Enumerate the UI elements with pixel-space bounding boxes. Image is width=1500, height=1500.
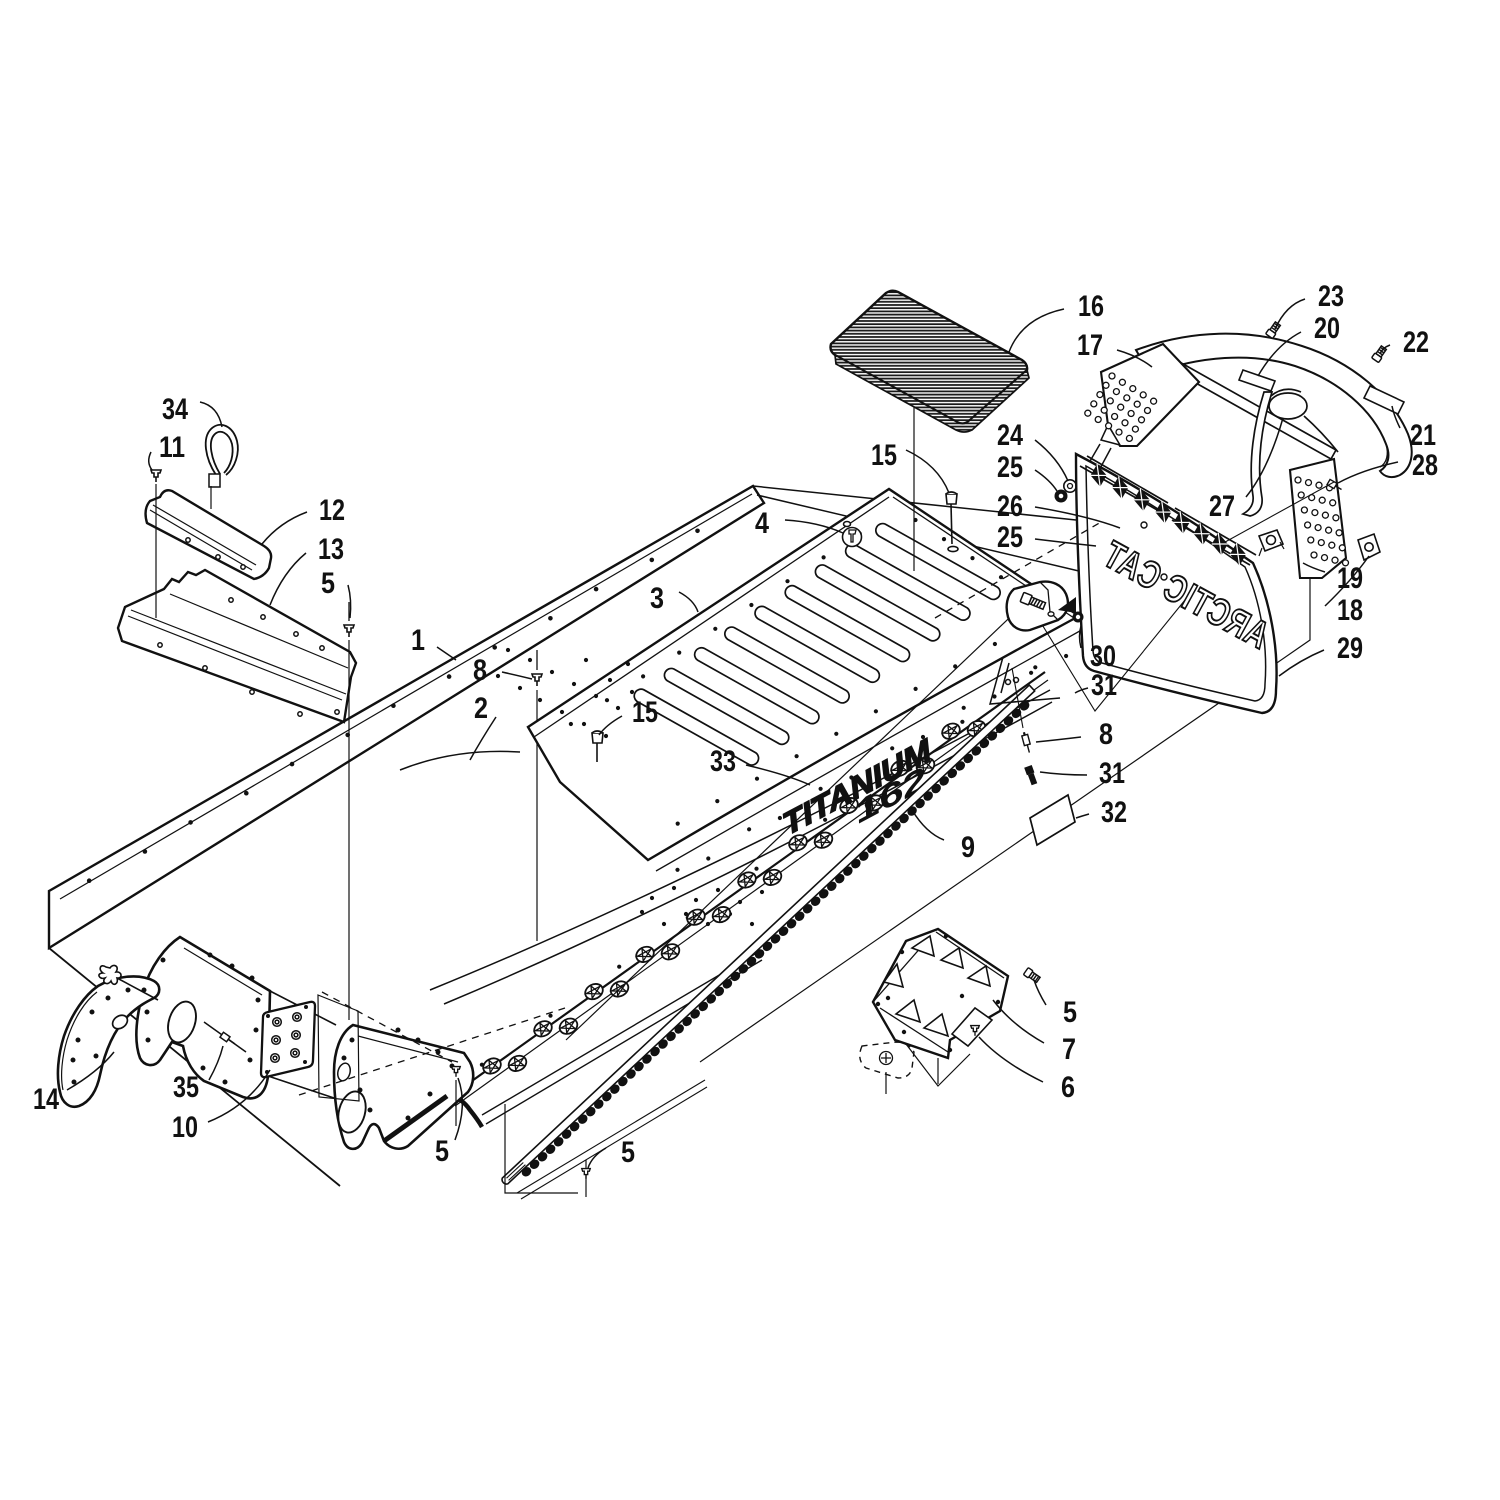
svg-text:18: 18: [1337, 594, 1363, 627]
svg-text:2: 2: [474, 692, 488, 725]
svg-text:8: 8: [1099, 718, 1113, 751]
svg-text:3: 3: [650, 582, 664, 615]
svg-text:21: 21: [1410, 419, 1436, 452]
svg-text:10: 10: [172, 1111, 198, 1144]
svg-text:11: 11: [159, 431, 185, 464]
svg-text:35: 35: [173, 1071, 199, 1104]
svg-text:5: 5: [321, 567, 335, 600]
svg-text:25: 25: [997, 521, 1023, 554]
svg-text:23: 23: [1318, 280, 1344, 313]
svg-text:5: 5: [1063, 996, 1077, 1029]
svg-text:5: 5: [435, 1135, 449, 1168]
svg-text:31: 31: [1099, 757, 1125, 790]
svg-text:32: 32: [1101, 796, 1127, 829]
svg-text:4: 4: [755, 507, 769, 540]
svg-text:29: 29: [1337, 632, 1363, 665]
svg-text:5: 5: [621, 1136, 635, 1169]
svg-text:26: 26: [997, 490, 1023, 523]
svg-text:24: 24: [997, 419, 1023, 452]
svg-text:20: 20: [1314, 312, 1340, 345]
svg-text:33: 33: [710, 745, 736, 778]
svg-text:12: 12: [319, 494, 345, 527]
svg-text:13: 13: [318, 533, 344, 566]
svg-text:27: 27: [1209, 490, 1235, 523]
svg-text:6: 6: [1061, 1071, 1075, 1104]
svg-text:16: 16: [1078, 290, 1104, 323]
svg-text:1: 1: [411, 624, 425, 657]
svg-text:28: 28: [1412, 449, 1438, 482]
svg-text:17: 17: [1077, 329, 1103, 362]
svg-text:15: 15: [871, 439, 897, 472]
svg-text:14: 14: [33, 1083, 59, 1116]
svg-text:31: 31: [1091, 669, 1117, 702]
svg-text:8: 8: [473, 654, 487, 687]
svg-text:15: 15: [632, 696, 658, 729]
svg-text:7: 7: [1062, 1033, 1076, 1066]
svg-text:9: 9: [961, 831, 975, 864]
svg-text:22: 22: [1403, 326, 1429, 359]
svg-text:25: 25: [997, 451, 1023, 484]
svg-text:34: 34: [162, 393, 188, 426]
